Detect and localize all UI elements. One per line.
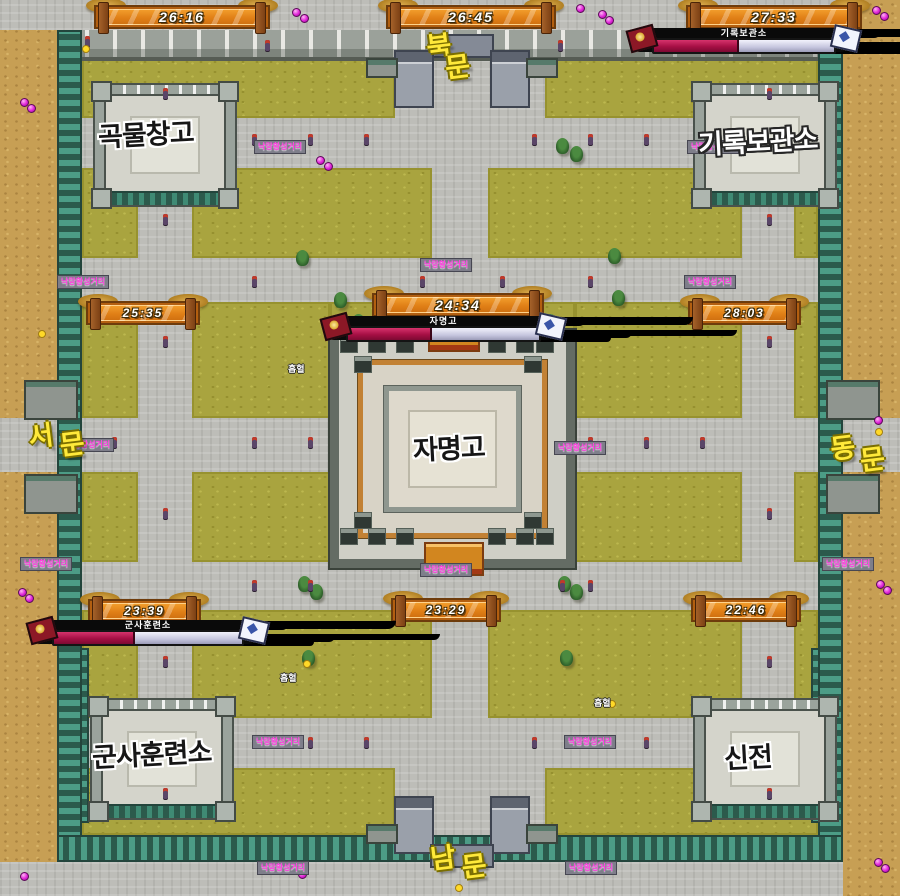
keep-turret — [354, 356, 372, 373]
lantern-post-icon — [588, 580, 593, 591]
health-fill — [654, 40, 739, 52]
health-track — [652, 38, 836, 54]
corner-tower — [691, 801, 712, 822]
tree-icon — [296, 250, 309, 266]
lantern-post-icon — [420, 276, 425, 287]
east-gate-tower-top[interactable] — [826, 380, 880, 420]
lantern-post-icon — [163, 88, 168, 99]
grass-block — [794, 472, 818, 562]
keep-turret — [396, 528, 414, 545]
street-signpost: 낙랑황성거리 — [420, 258, 472, 272]
lantern-post-icon — [767, 656, 772, 667]
timer-time: 28:03 — [688, 301, 801, 325]
gold-drop-icon — [303, 660, 311, 668]
gate-label-char: 남 — [428, 835, 457, 877]
lantern-post-icon — [163, 508, 168, 519]
timer-s: 23:29 — [391, 598, 501, 622]
lantern-post-icon — [767, 336, 772, 347]
lantern-post-icon — [644, 437, 649, 448]
lantern-post-icon — [364, 134, 369, 145]
timer-time: 23:29 — [391, 598, 501, 622]
item-orb-icon — [324, 162, 333, 171]
south-gate-tower-right[interactable] — [490, 796, 530, 854]
item-orb-icon — [300, 14, 309, 23]
mob-name-label: 흡혈 — [288, 362, 305, 375]
item-orb-icon — [883, 586, 892, 595]
street-signpost: 낙랑황성거리 — [252, 735, 304, 749]
corner-tower — [218, 81, 239, 102]
street-signpost: 낙랑황성거리 — [564, 735, 616, 749]
lantern-post-icon — [252, 437, 257, 448]
lantern-post-icon — [265, 40, 270, 51]
south-gate-wall-right — [526, 824, 558, 844]
road-band-bottom — [0, 862, 843, 896]
street-signpost: 낙랑황성거리 — [254, 140, 306, 154]
item-orb-icon — [576, 4, 585, 13]
roof-band — [695, 191, 835, 205]
corner-tower — [215, 696, 236, 717]
item-orb-icon — [605, 16, 614, 25]
corner-tower — [218, 188, 239, 209]
tree-icon — [608, 248, 621, 264]
roof-band — [95, 191, 235, 205]
keep-turret — [368, 528, 386, 545]
corner-tower — [91, 81, 112, 102]
item-orb-icon — [27, 104, 36, 113]
lantern-post-icon — [308, 737, 313, 748]
street-signpost: 낙랑황성거리 — [565, 861, 617, 875]
west-gate-tower-top[interactable] — [24, 380, 78, 420]
health-track — [346, 326, 541, 342]
corner-tower — [818, 801, 839, 822]
lantern-post-icon — [767, 788, 772, 799]
street-signpost: 낙랑황성거리 — [257, 861, 309, 875]
gold-drop-icon — [875, 428, 883, 436]
east-gate-tower-bottom[interactable] — [826, 474, 880, 514]
battlement-dots — [695, 700, 835, 709]
keep-turret — [340, 528, 358, 545]
lantern-post-icon — [558, 40, 563, 51]
roof-band — [695, 804, 835, 818]
grass-block — [82, 472, 138, 562]
lantern-post-icon — [560, 580, 565, 591]
corner-tower — [818, 81, 839, 102]
street-signpost: 낙랑황성거리 — [684, 275, 736, 289]
boss-name: 자명고 — [322, 314, 565, 327]
timer-e: 28:03 — [688, 301, 801, 325]
north-gate-tower-right[interactable] — [490, 50, 530, 108]
corner-tower — [691, 81, 712, 102]
boss-name: 기록보관소 — [628, 26, 860, 39]
tree-icon — [570, 584, 583, 600]
item-orb-icon — [874, 416, 883, 425]
gate-label-char: 문 — [459, 843, 488, 885]
tree-icon — [612, 290, 625, 306]
lantern-post-icon — [163, 214, 168, 225]
boss-health-bar: 기록보관소 — [628, 24, 860, 58]
mob-name-label: 흡혈 — [594, 696, 611, 709]
north-gate-wall-left — [366, 58, 398, 78]
corner-tower — [818, 188, 839, 209]
boss-name: 군사훈련소 — [28, 618, 268, 631]
gate-label-char: 동 — [828, 425, 857, 467]
lantern-post-icon — [644, 737, 649, 748]
keep-turret — [516, 528, 534, 545]
lantern-post-icon — [532, 134, 537, 145]
health-fill — [348, 328, 432, 340]
lantern-post-icon — [500, 276, 505, 287]
timer-w: 25:35 — [86, 301, 200, 325]
gate-label-char: 서 — [26, 413, 55, 455]
corner-tower — [88, 696, 109, 717]
timer-nw: 26:16 — [94, 5, 270, 29]
lantern-post-icon — [252, 276, 257, 287]
health-fill — [54, 632, 135, 644]
gate-label-char: 문 — [443, 44, 472, 86]
west-gate-tower-bottom[interactable] — [24, 474, 78, 514]
keep-turret — [354, 512, 372, 529]
building-label: 기록보관소 — [697, 117, 818, 162]
lantern-post-icon — [308, 580, 313, 591]
tree-icon — [560, 650, 573, 666]
lantern-post-icon — [252, 580, 257, 591]
battlement-dots — [92, 700, 232, 709]
lantern-post-icon — [767, 88, 772, 99]
timer-time: 22:46 — [691, 598, 801, 622]
timer-n: 26:45 — [386, 5, 556, 29]
lantern-post-icon — [700, 437, 705, 448]
building-label: 신전 — [723, 735, 773, 776]
roof-band — [92, 804, 232, 818]
lantern-post-icon — [163, 656, 168, 667]
timer-time: 25:35 — [86, 301, 200, 325]
building-label: 곡물창고 — [97, 111, 194, 155]
keep-turret — [488, 528, 506, 545]
corner-tower — [818, 696, 839, 717]
lantern-post-icon — [588, 276, 593, 287]
item-orb-icon — [880, 12, 889, 21]
timer-se: 22:46 — [691, 598, 801, 622]
corner-tower — [88, 801, 109, 822]
timer-time: 26:45 — [386, 5, 556, 29]
lantern-post-icon — [588, 134, 593, 145]
boss-health-bar: 군사훈련소 — [28, 616, 268, 650]
corner-tower — [215, 801, 236, 822]
gate-label-char: 문 — [858, 436, 887, 478]
street-signpost: 낙랑황성거리 — [822, 557, 874, 571]
street-signpost: 낙랑황성거리 — [420, 563, 472, 577]
item-orb-icon — [20, 872, 29, 881]
item-orb-icon — [25, 594, 34, 603]
building-label: 군사훈련소 — [91, 730, 212, 775]
street-signpost: 낙랑황성거리 — [57, 275, 109, 289]
gate-label-char: 문 — [57, 421, 86, 463]
corner-tower — [691, 696, 712, 717]
lantern-post-icon — [767, 214, 772, 225]
grass-block — [575, 472, 742, 562]
tree-icon — [556, 138, 569, 154]
gold-drop-icon — [82, 45, 90, 53]
keep-turret — [536, 528, 554, 545]
building-label: 자명고 — [412, 425, 485, 468]
grass-block — [192, 302, 330, 418]
lantern-post-icon — [364, 737, 369, 748]
corner-tower — [91, 188, 112, 209]
lantern-post-icon — [163, 336, 168, 347]
lantern-post-icon — [163, 788, 168, 799]
game-map-canvas[interactable]: 낙랑황성거리낙랑황성거리낙랑황성거리낙랑황성거리낙랑황성거리낙랑황성거리낙랑황성… — [0, 0, 900, 896]
corner-tower — [691, 188, 712, 209]
gold-drop-icon — [455, 884, 463, 892]
south-gate-wall-left — [366, 824, 398, 844]
lantern-post-icon — [644, 134, 649, 145]
grass-block — [192, 472, 330, 562]
lantern-post-icon — [767, 508, 772, 519]
tree-icon — [334, 292, 347, 308]
health-track — [52, 630, 244, 646]
north-gate-wall-right — [526, 58, 558, 78]
gold-drop-icon — [38, 330, 46, 338]
yard-wall-southwest — [80, 648, 89, 823]
street-signpost: 낙랑황성거리 — [20, 557, 72, 571]
mob-name-label: 흡혈 — [280, 671, 297, 684]
timer-time: 26:16 — [94, 5, 270, 29]
keep-turret — [524, 512, 542, 529]
keep-turret — [524, 356, 542, 373]
boss-health-bar: 자명고 — [322, 312, 565, 346]
tree-icon — [570, 146, 583, 162]
lantern-post-icon — [532, 737, 537, 748]
lantern-post-icon — [308, 437, 313, 448]
battlement-dots — [695, 85, 835, 94]
lantern-post-icon — [308, 134, 313, 145]
item-orb-icon — [881, 864, 890, 873]
street-signpost: 낙랑황성거리 — [554, 441, 606, 455]
